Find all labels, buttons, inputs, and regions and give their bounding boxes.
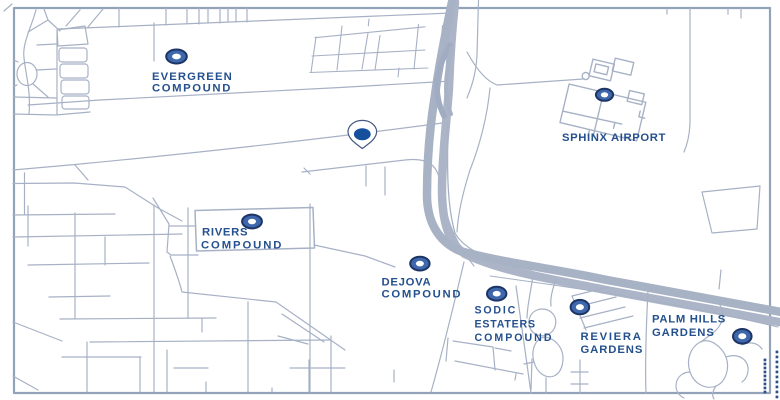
svg-text:COMPOUND: COMPOUND <box>152 83 232 95</box>
svg-text:GARDENS: GARDENS <box>581 344 644 356</box>
svg-text:SPHINX AIRPORT: SPHINX AIRPORT <box>562 132 666 144</box>
svg-text:PALM HILLS: PALM HILLS <box>652 314 726 326</box>
svg-text:REVIERA: REVIERA <box>581 331 643 343</box>
svg-text:DEJOVA: DEJOVA <box>382 277 432 289</box>
svg-text:COMPOUND: COMPOUND <box>382 289 463 301</box>
svg-text:EVERGREEN: EVERGREEN <box>152 71 233 83</box>
svg-text:COMPOUND: COMPOUND <box>475 332 554 344</box>
svg-text:SODIC: SODIC <box>475 305 518 317</box>
svg-text:ESTATERS: ESTATERS <box>475 319 536 331</box>
svg-text:COMPOUND: COMPOUND <box>201 240 283 252</box>
svg-text:GARDENS: GARDENS <box>652 327 715 339</box>
svg-text:RIVERS: RIVERS <box>202 227 248 239</box>
